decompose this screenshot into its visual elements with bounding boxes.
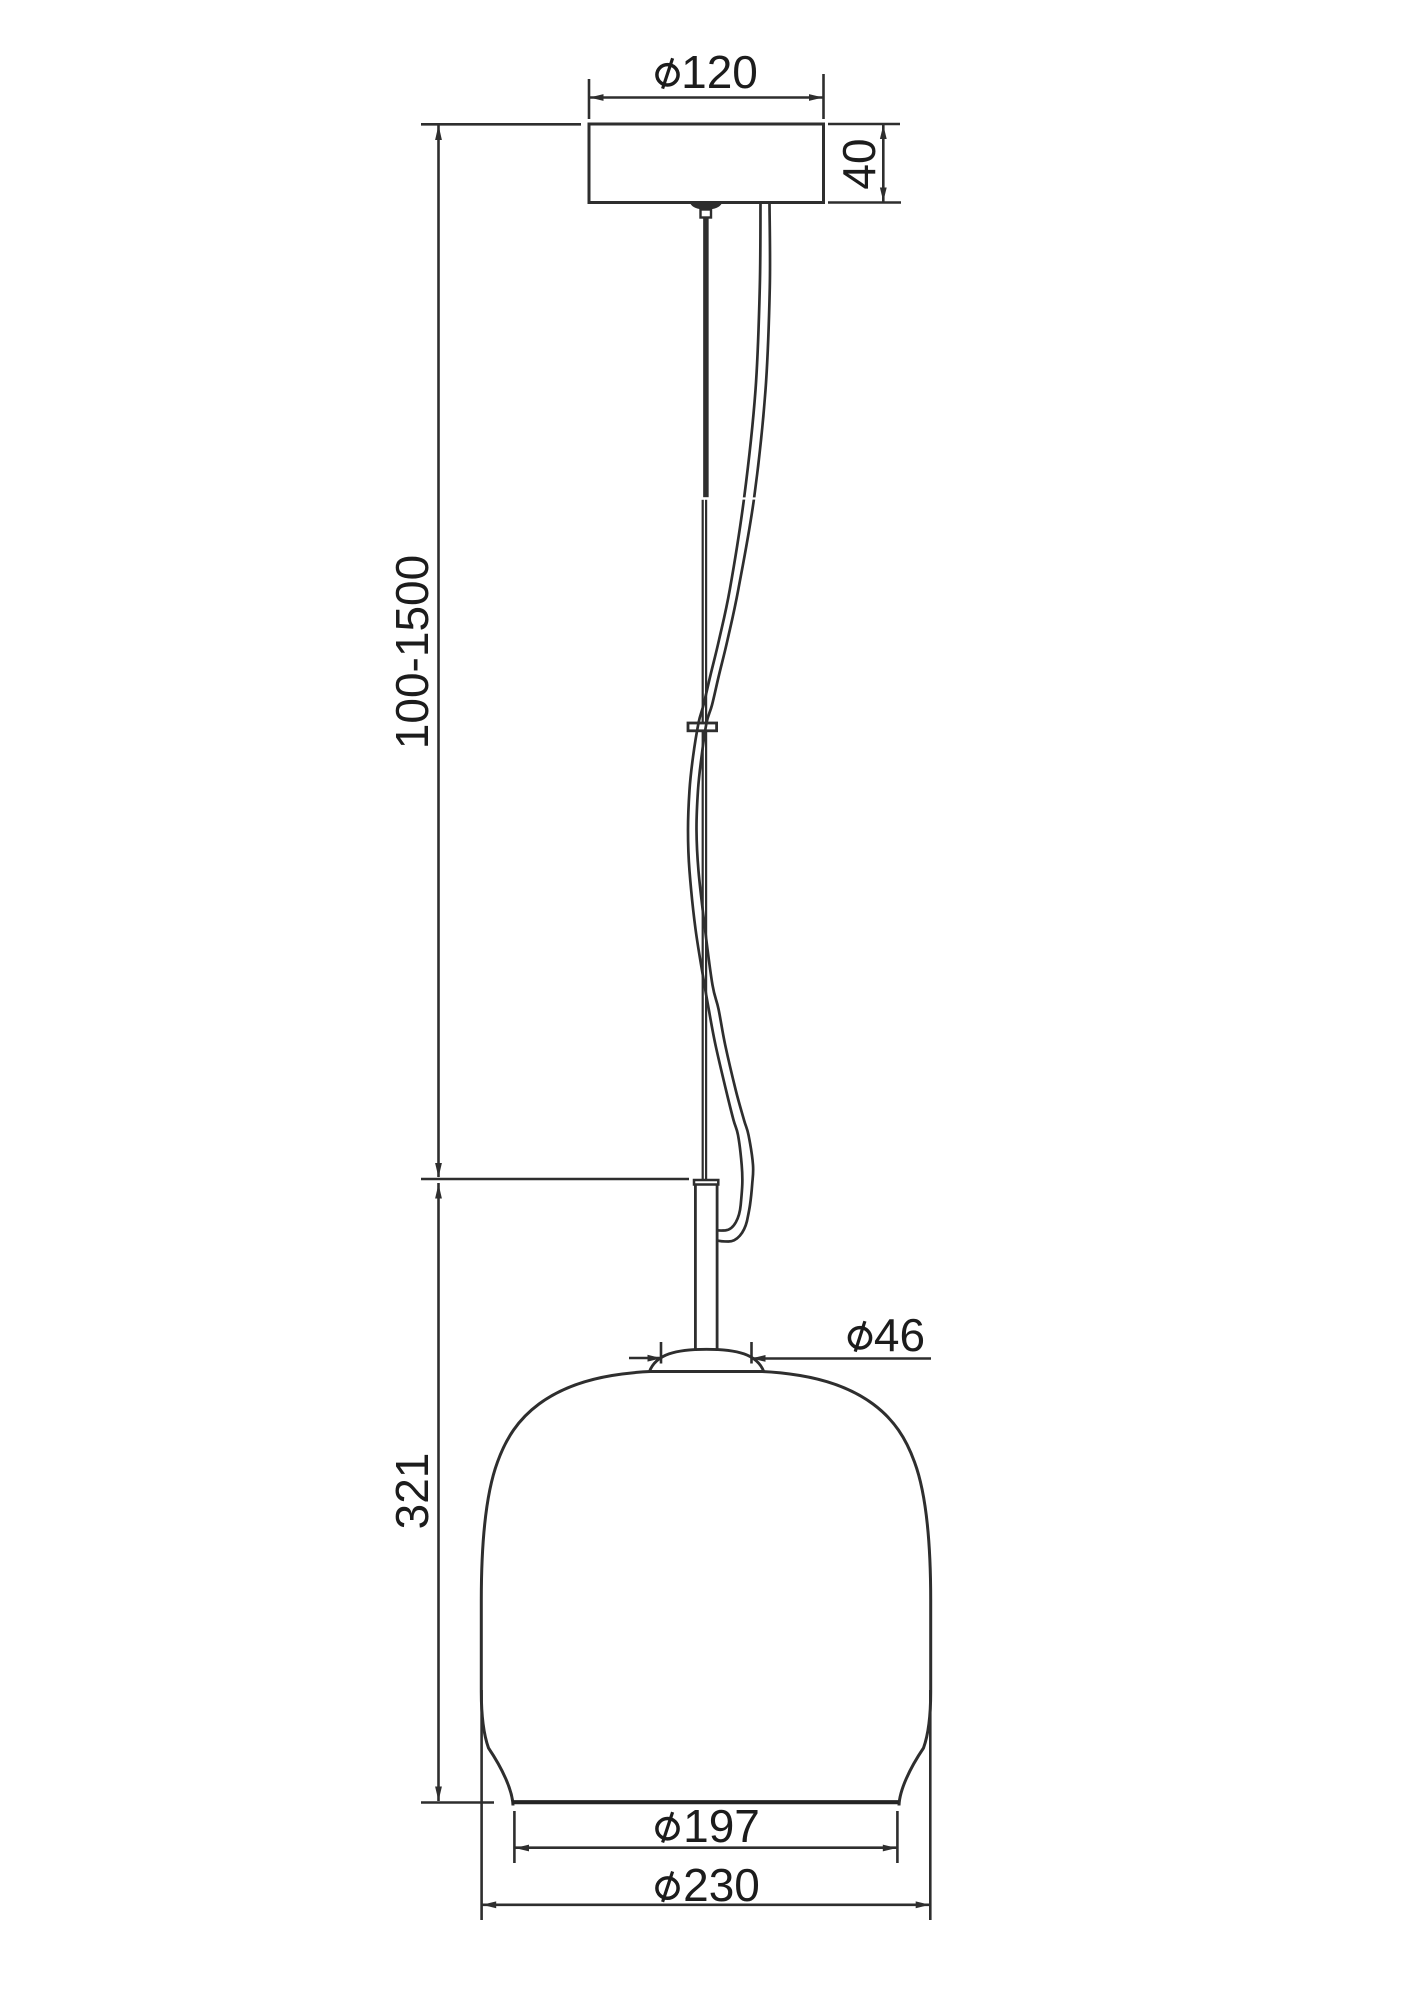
svg-text:230: 230 xyxy=(683,1859,760,1911)
svg-text:197: 197 xyxy=(683,1800,760,1852)
svg-text:321: 321 xyxy=(386,1453,438,1530)
svg-text:100-1500: 100-1500 xyxy=(386,555,438,749)
svg-text:40: 40 xyxy=(833,138,885,189)
svg-text:120: 120 xyxy=(681,46,758,98)
svg-text:46: 46 xyxy=(874,1309,925,1361)
